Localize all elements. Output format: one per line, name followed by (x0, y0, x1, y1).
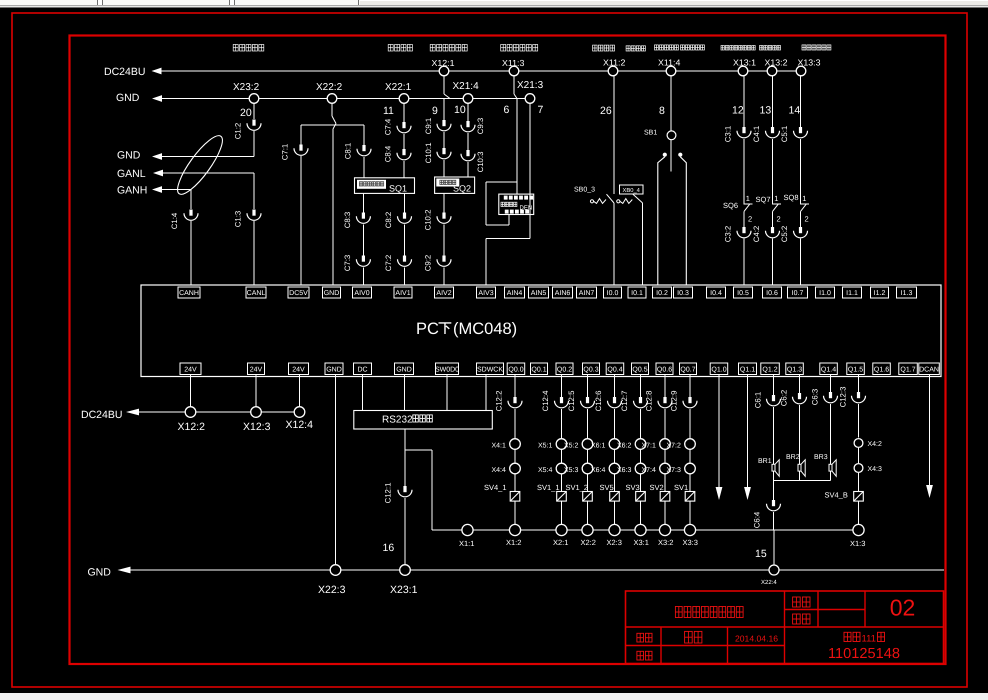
svg-text:SQ1: SQ1 (389, 184, 407, 194)
svg-text:C3:1: C3:1 (724, 126, 733, 142)
svg-text:GND: GND (117, 150, 141, 162)
svg-text:X6:1: X6:1 (591, 443, 606, 450)
svg-text:I0.7: I0.7 (792, 290, 804, 297)
svg-text:X21:3: X21:3 (517, 80, 544, 91)
svg-text:X7:1: X7:1 (642, 443, 657, 450)
svg-text:Q0.7: Q0.7 (680, 366, 695, 373)
svg-text:8: 8 (659, 105, 665, 117)
svg-text:C12:6: C12:6 (594, 391, 603, 412)
svg-text:24V: 24V (292, 366, 305, 373)
svg-text:X2:2: X2:2 (581, 538, 596, 547)
svg-text:C1:4: C1:4 (170, 212, 179, 229)
svg-text:X22:2: X22:2 (316, 82, 343, 93)
svg-text:Q1.2: Q1.2 (762, 366, 777, 373)
svg-text:C4:2: C4:2 (752, 226, 761, 242)
svg-text:C1:2: C1:2 (234, 123, 243, 139)
svg-text:I0.2: I0.2 (656, 290, 668, 297)
svg-text:C12:2: C12:2 (495, 391, 504, 412)
svg-text:X4:4: X4:4 (492, 467, 507, 474)
svg-text:I1.3: I1.3 (901, 290, 913, 297)
svg-text:2014.04.16: 2014.04.16 (735, 634, 778, 644)
svg-text:DCAN: DCAN (919, 366, 939, 373)
svg-text:20: 20 (240, 107, 252, 119)
svg-text:X3:3: X3:3 (683, 538, 698, 547)
svg-text:02: 02 (890, 595, 916, 621)
svg-text:X7:4: X7:4 (642, 467, 657, 474)
svg-text:X6:3: X6:3 (617, 467, 632, 474)
svg-text:1: 1 (746, 194, 750, 203)
svg-text:X5:4: X5:4 (538, 467, 553, 474)
svg-text:2: 2 (777, 215, 781, 224)
svg-text:X12:3: X12:3 (243, 421, 271, 433)
svg-text:C8:4: C8:4 (384, 145, 393, 162)
svg-text:Q1.5: Q1.5 (848, 366, 863, 373)
svg-text:X22:1: X22:1 (385, 82, 412, 93)
svg-text:C1:3: C1:3 (234, 211, 243, 227)
svg-text:X23:1: X23:1 (390, 584, 418, 596)
svg-text:C12:4: C12:4 (541, 390, 550, 411)
svg-text:15: 15 (755, 548, 767, 560)
svg-text:C12:1: C12:1 (384, 483, 393, 504)
svg-text:SV5: SV5 (600, 483, 614, 492)
svg-text:C6:3: C6:3 (811, 389, 820, 405)
svg-text:111: 111 (862, 634, 876, 645)
svg-text:C9:2: C9:2 (424, 255, 433, 271)
svg-text:DC5V: DC5V (289, 290, 308, 297)
svg-text:I0.4: I0.4 (710, 290, 722, 297)
svg-text:C8:2: C8:2 (384, 212, 393, 228)
svg-text:SQ8: SQ8 (784, 193, 799, 202)
svg-text:7: 7 (538, 104, 544, 116)
svg-text:GANL: GANL (117, 168, 146, 180)
svg-text:DC: DC (357, 366, 367, 373)
svg-text:SV1: SV1 (674, 483, 688, 492)
svg-text:Q0.2: Q0.2 (557, 366, 572, 373)
svg-text:X23:2: X23:2 (233, 82, 260, 93)
svg-text:X12:4: X12:4 (286, 419, 314, 431)
svg-text:I0.1: I0.1 (631, 290, 643, 297)
svg-text:11: 11 (383, 105, 394, 117)
svg-text:C6:2: C6:2 (780, 390, 789, 406)
svg-text:AIV0: AIV0 (354, 290, 369, 297)
svg-text:2: 2 (748, 215, 752, 224)
svg-text:I1.2: I1.2 (874, 290, 886, 297)
svg-text:SV4_1: SV4_1 (484, 483, 507, 492)
svg-text:AIN7: AIN7 (579, 290, 595, 297)
svg-text:RS232: RS232 (382, 415, 413, 426)
svg-text:XB0_4: XB0_4 (622, 187, 640, 194)
svg-text:CANL: CANL (247, 290, 266, 297)
svg-text:I1.1: I1.1 (846, 290, 858, 297)
svg-text:X6:2: X6:2 (617, 443, 632, 450)
svg-text:AIV1: AIV1 (395, 290, 410, 297)
svg-text:X5:3: X5:3 (564, 467, 579, 474)
svg-text:C7:1: C7:1 (281, 144, 290, 160)
svg-text:C6:1: C6:1 (754, 392, 763, 408)
svg-text:GND: GND (88, 567, 112, 579)
svg-text:24V: 24V (184, 366, 197, 373)
svg-text:I1.0: I1.0 (819, 290, 831, 297)
svg-text:SV2: SV2 (650, 483, 664, 492)
svg-text:BR2: BR2 (786, 454, 800, 461)
svg-text:Q1.7: Q1.7 (900, 366, 915, 373)
svg-text:SQ7: SQ7 (756, 195, 771, 204)
svg-text:GANH: GANH (117, 185, 147, 197)
svg-text:(MC048): (MC048) (453, 320, 517, 338)
svg-text:X2:3: X2:3 (607, 538, 622, 547)
svg-text:SB0_3: SB0_3 (574, 187, 595, 194)
svg-text:GND: GND (116, 92, 140, 104)
svg-text:SV1_1: SV1_1 (537, 483, 560, 492)
svg-text:X5:1: X5:1 (538, 443, 553, 450)
svg-text:C3:2: C3:2 (724, 226, 733, 242)
svg-text:Q0.5: Q0.5 (632, 366, 647, 373)
svg-text:C5:2: C5:2 (780, 226, 789, 242)
svg-text:C7:4: C7:4 (384, 118, 393, 135)
svg-text:X22:4: X22:4 (761, 579, 777, 586)
svg-text:24V: 24V (250, 366, 263, 373)
svg-text:13: 13 (760, 105, 772, 117)
svg-text:C6:4: C6:4 (753, 511, 762, 528)
svg-text:C7:3: C7:3 (343, 255, 352, 271)
svg-text:14: 14 (789, 105, 801, 117)
svg-text:Q0.1: Q0.1 (531, 366, 546, 373)
svg-text:X6:4: X6:4 (591, 467, 606, 474)
svg-text:C12:5: C12:5 (567, 390, 576, 411)
svg-text:X22:3: X22:3 (318, 584, 346, 596)
svg-text:X4:2: X4:2 (868, 441, 883, 448)
svg-text:12: 12 (732, 105, 744, 117)
svg-text:SQ2: SQ2 (453, 184, 471, 194)
svg-text:AIN5: AIN5 (531, 290, 547, 297)
svg-text:110125148: 110125148 (828, 646, 900, 662)
svg-text:6: 6 (504, 104, 510, 116)
svg-text:C12:7: C12:7 (620, 391, 629, 412)
svg-text:C12:8: C12:8 (645, 391, 654, 412)
svg-text:X12:2: X12:2 (178, 421, 206, 433)
svg-text:X5:2: X5:2 (564, 443, 579, 450)
svg-text:DC24BU: DC24BU (104, 66, 145, 78)
svg-text:AIV3: AIV3 (478, 290, 493, 297)
svg-text:X4:3: X4:3 (868, 466, 883, 473)
svg-text:GND: GND (396, 366, 412, 373)
svg-text:10: 10 (454, 104, 466, 116)
svg-text:I0.0: I0.0 (607, 290, 619, 297)
svg-text:BR1: BR1 (758, 458, 772, 465)
svg-text:X4:1: X4:1 (492, 443, 507, 450)
svg-text:X13:2: X13:2 (765, 58, 788, 68)
svg-text:SV1_2: SV1_2 (566, 483, 589, 492)
svg-text:AIN6: AIN6 (555, 290, 571, 297)
svg-text:GND: GND (324, 290, 340, 297)
svg-text:Q0.0: Q0.0 (508, 366, 523, 373)
svg-text:Q1.4: Q1.4 (821, 366, 836, 373)
svg-text:X3:1: X3:1 (634, 538, 649, 547)
svg-text:SV4_B: SV4_B (825, 491, 848, 500)
svg-text:SB1: SB1 (644, 130, 657, 137)
svg-text:AIN4: AIN4 (507, 290, 523, 297)
svg-text:C12:9: C12:9 (670, 391, 679, 412)
svg-text:DC24BU: DC24BU (81, 409, 122, 421)
svg-text:SW0D0: SW0D0 (435, 366, 459, 373)
svg-text:X21:4: X21:4 (453, 81, 480, 92)
svg-text:16: 16 (383, 542, 395, 554)
svg-text:C8:1: C8:1 (344, 143, 353, 159)
svg-text:Q0.3: Q0.3 (583, 366, 598, 373)
svg-text:Q1.6: Q1.6 (874, 366, 889, 373)
svg-text:C10:2: C10:2 (424, 210, 433, 231)
svg-text:C8:3: C8:3 (343, 212, 352, 228)
svg-text:X2:1: X2:1 (553, 538, 568, 547)
svg-text:CANH: CANH (179, 290, 199, 297)
svg-text:9: 9 (432, 105, 438, 117)
svg-text:C9:1: C9:1 (424, 118, 433, 134)
svg-text:26: 26 (600, 105, 612, 117)
svg-text:Q1.1: Q1.1 (740, 366, 755, 373)
svg-text:1: 1 (774, 194, 778, 203)
svg-text:X7:3: X7:3 (667, 467, 682, 474)
svg-text:I0.5: I0.5 (737, 290, 749, 297)
svg-text:2: 2 (805, 215, 809, 224)
svg-text:C4:1: C4:1 (752, 126, 761, 142)
svg-text:GND: GND (326, 366, 342, 373)
svg-text:I0.3: I0.3 (677, 290, 689, 297)
svg-text:AIV2: AIV2 (436, 290, 451, 297)
svg-text:Q1.3: Q1.3 (787, 366, 802, 373)
svg-text:Q0.6: Q0.6 (657, 366, 672, 373)
svg-text:SQ6: SQ6 (723, 201, 738, 210)
svg-text:SV3: SV3 (626, 483, 640, 492)
svg-text:X1:1: X1:1 (459, 539, 474, 548)
svg-text:Q1.0: Q1.0 (711, 366, 726, 373)
svg-text:I0.6: I0.6 (766, 290, 778, 297)
svg-text:SDWCK: SDWCK (477, 366, 503, 373)
svg-text:C7:2: C7:2 (384, 255, 393, 271)
svg-text:C10:1: C10:1 (424, 143, 433, 164)
svg-text:1: 1 (802, 194, 806, 203)
svg-text:C10:3: C10:3 (476, 152, 485, 173)
svg-text:PC: PC (416, 320, 439, 338)
svg-text:C12:3: C12:3 (839, 387, 848, 408)
svg-text:C5:1: C5:1 (780, 126, 789, 142)
svg-text:X7:2: X7:2 (667, 443, 682, 450)
svg-text:C9:3: C9:3 (476, 118, 485, 134)
svg-text:BR3: BR3 (814, 454, 828, 461)
svg-text:X1:2: X1:2 (506, 538, 521, 547)
svg-text:X1:3: X1:3 (850, 539, 865, 548)
svg-text:Q0.4: Q0.4 (607, 366, 622, 373)
svg-text:X3:2: X3:2 (658, 538, 673, 547)
